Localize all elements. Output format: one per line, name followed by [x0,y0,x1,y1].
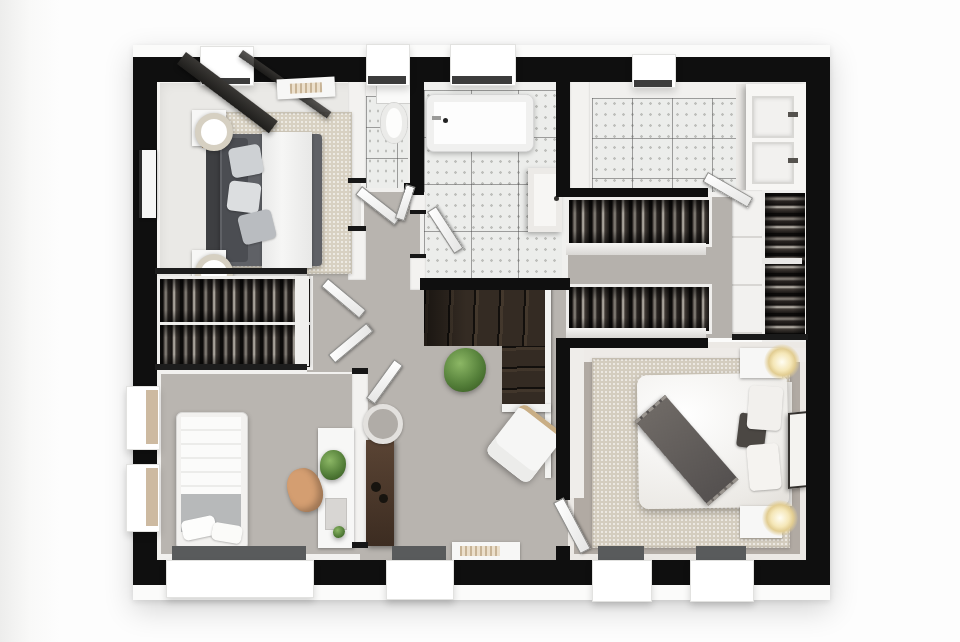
window-top-4-sill [634,80,672,87]
ensuite-faucet-1 [788,112,798,117]
wall-ensuite-west-face [570,78,590,197]
nook-clothes-rack-top [157,276,313,326]
bedroom2-desk-items [325,498,347,530]
master-pillow-2 [746,443,782,492]
window-top-3-sill [452,76,512,84]
master-lamp-bottom [762,500,798,536]
window-left-2-inner [146,468,158,526]
nook-clothes-rack-bottom [157,322,313,370]
toilet-tank [376,84,412,104]
wall-cap-bedroom2-a [352,368,368,374]
hall-round-mirror [363,404,403,444]
bathtub-drain [443,118,448,123]
bedroom1-wall-art [139,150,156,218]
ensuite-sink-1 [752,96,794,138]
closet-rack-north [566,197,712,247]
staircase-upper-run [424,290,545,346]
bathtub [426,94,534,152]
wall-master-west-face [570,348,584,498]
ensuite-faucet-2 [788,158,798,163]
hall-console-decor-1 [371,482,381,492]
wall-wardrobe-bottom-line [732,334,808,340]
window-bottom-3-sill [592,560,652,602]
wardrobe-divider [762,258,802,264]
hall-console-decor-2 [379,494,388,503]
hall-floor-vent-slats [460,546,500,556]
master-lamp-top [764,344,800,380]
closet-shelf-north [566,243,706,255]
window-left-1-inner [146,390,158,444]
wall-cap-bedroom1-door-b [348,226,366,231]
wall-cap-bedroom2-b [352,542,368,548]
staircase-lower-run [502,346,545,410]
window-top-2-sill [368,76,406,84]
bedroom1-pillow-2 [226,180,261,214]
ensuite-tiles [592,98,750,192]
wall-master-west [556,338,570,500]
ensuite-sink-2 [752,142,794,184]
wall-nook-north-line [155,268,307,274]
ceiling-vent-slats [290,82,322,94]
nook-shelf-edge [295,276,309,366]
floor-plan-stage [0,0,960,642]
closet-rack-south [566,284,712,334]
hall-console-table [366,440,394,546]
wall-cap-bedroom1-door-a [348,178,366,183]
wall-wc-east [410,78,424,192]
window-bottom-2-sill [386,560,454,600]
bathtub-faucet [432,116,441,120]
master-leaning-art [788,411,808,489]
wall-closet-north [556,188,708,197]
window-bottom-4-sill [690,560,754,602]
wardrobe-cabinet-panel [732,190,762,336]
master-pillow-1 [747,385,784,431]
toilet-bowl [380,102,408,144]
wardrobe-clothes-column [762,190,808,342]
bedroom1-lamp-top [195,113,233,151]
bedroom1-pillow-1 [228,143,265,178]
window-bottom-1-sill [166,560,314,598]
wall-bathroom-east [556,57,570,197]
closet-shelf-south [566,328,706,338]
bedroom2-duvet [181,417,241,495]
wall-master-west-cap [556,546,570,562]
wall-nook-south-line [155,364,307,370]
outer-wall-right [806,57,830,585]
bedroom1-bed-runner [262,132,312,268]
wall-cap-bath-door-b [410,254,426,258]
wall-master-north [556,338,708,348]
wall-bathroom-south [420,278,570,290]
wall-cap-bath-door-a [410,210,426,214]
